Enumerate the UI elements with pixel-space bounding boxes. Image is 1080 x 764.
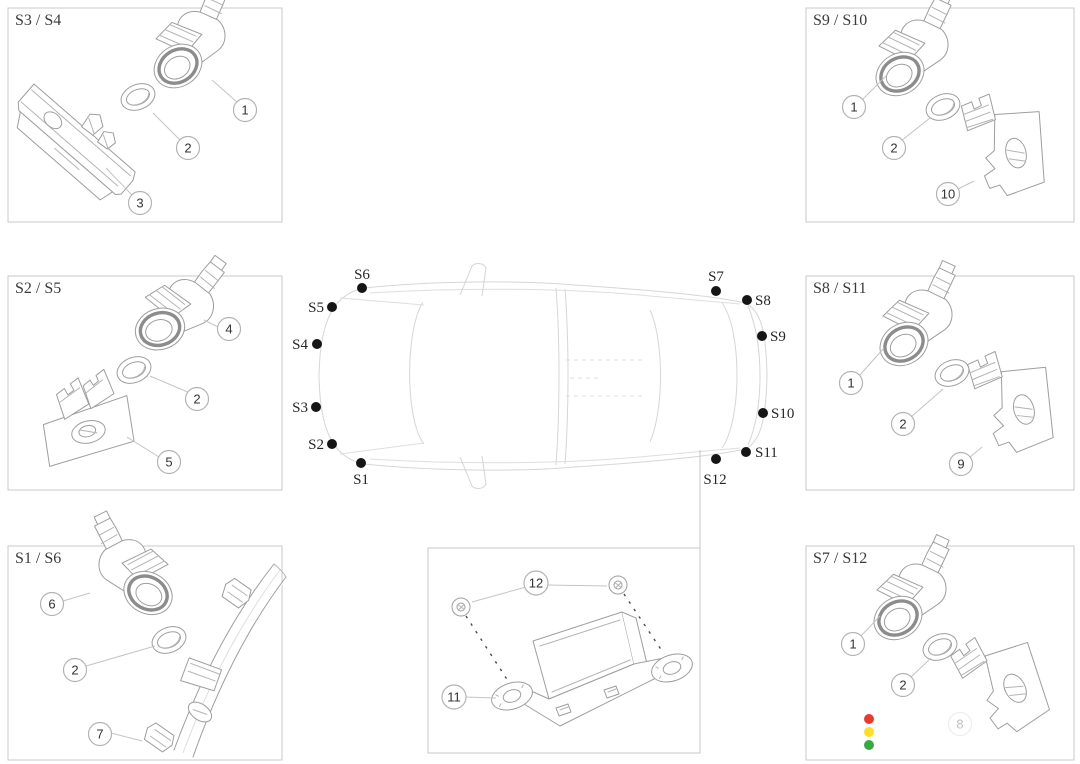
panel-label: S2 / S5 (15, 280, 61, 297)
car-trunk-lines (722, 303, 760, 448)
panel-s3-s4: S3 / S4 1 2 3 (5, 0, 282, 222)
panel-label: S7 / S12 (813, 550, 867, 567)
svg-text:2: 2 (899, 417, 906, 432)
callout-2[interactable]: 2 (892, 413, 915, 436)
sensor-marker-s1[interactable] (356, 458, 366, 468)
callout-11[interactable]: 11 (442, 685, 466, 709)
label-s6: S6 (354, 267, 370, 283)
label-s2: S2 (308, 437, 324, 453)
callout-10[interactable]: 10 (937, 183, 960, 206)
svg-text:11: 11 (447, 690, 461, 705)
car-sunroof-dashes (566, 360, 645, 396)
label-s9: S9 (770, 329, 786, 345)
callout-1[interactable]: 1 (840, 372, 863, 395)
sensor-marker-s12[interactable] (711, 454, 721, 464)
label-s11: S11 (755, 445, 778, 461)
svg-text:4: 4 (225, 322, 232, 337)
label-s7: S7 (708, 269, 724, 285)
sensor-marker-s6[interactable] (357, 283, 367, 293)
sensor-markers (311, 283, 768, 468)
svg-text:12: 12 (529, 576, 543, 591)
callout-3[interactable]: 3 (129, 192, 152, 215)
panel-label: S8 / S11 (813, 280, 867, 297)
svg-text:8: 8 (956, 717, 963, 732)
label-s1: S1 (353, 472, 369, 488)
svg-text:10: 10 (941, 187, 955, 202)
panel-s8-s11: S8 / S11 1 2 9 (806, 259, 1074, 490)
svg-text:2: 2 (899, 678, 906, 693)
svg-text:2: 2 (71, 663, 78, 678)
callout-2[interactable]: 2 (186, 388, 209, 411)
panel-s2-s5: S2 / S5 4 2 5 (8, 247, 282, 490)
svg-text:9: 9 (957, 457, 964, 472)
diagram-canvas: S3 / S4 1 2 3 S2 / S5 (0, 0, 1080, 764)
pdc-sensor-parts-diagram: S3 / S4 1 2 3 S2 / S5 (0, 0, 1080, 764)
svg-text:1: 1 (847, 376, 854, 391)
label-s12: S12 (703, 472, 726, 488)
screw-drawing-left (452, 598, 470, 616)
callout-1[interactable]: 1 (234, 99, 257, 122)
panel-label: S3 / S4 (15, 12, 61, 29)
label-s3: S3 (292, 400, 308, 416)
car-body-outline (319, 282, 767, 470)
callout-1[interactable]: 1 (842, 633, 865, 656)
callout-9[interactable]: 9 (950, 453, 973, 476)
svg-text:1: 1 (241, 103, 248, 118)
car-rear-window (650, 310, 661, 442)
status-dot-green (864, 740, 874, 750)
callout-2[interactable]: 2 (64, 659, 87, 682)
label-s8: S8 (755, 293, 771, 309)
car-mirrors (460, 264, 486, 489)
label-s4: S4 (292, 337, 308, 353)
svg-text:2: 2 (890, 141, 897, 156)
sensor-marker-s3[interactable] (311, 402, 321, 412)
panel-s9-s10: S9 / S10 1 2 10 (806, 0, 1074, 222)
sensor-marker-s4[interactable] (312, 339, 322, 349)
sensor-marker-s5[interactable] (327, 302, 337, 312)
svg-text:2: 2 (184, 141, 191, 156)
panel-label: S9 / S10 (813, 12, 867, 29)
status-lights (864, 714, 874, 750)
label-s5: S5 (308, 300, 324, 316)
status-dot-yellow (864, 727, 874, 737)
callout-7[interactable]: 7 (89, 723, 112, 746)
sensor-marker-s11[interactable] (741, 447, 751, 457)
status-dot-red (864, 714, 874, 724)
sensor-marker-s8[interactable] (742, 295, 752, 305)
svg-text:3: 3 (136, 196, 143, 211)
sensor-marker-s9[interactable] (757, 331, 767, 341)
panel-s1-s6: S1 / S6 (8, 510, 286, 760)
car-windshield (410, 302, 424, 444)
callout-4[interactable]: 4 (218, 318, 241, 341)
car-side-lines (340, 289, 740, 463)
callout-8[interactable]: 8 (949, 713, 972, 736)
callout-6[interactable]: 6 (41, 593, 64, 616)
callout-1[interactable]: 1 (843, 96, 866, 119)
sensor-marker-s10[interactable] (758, 408, 768, 418)
svg-text:1: 1 (850, 100, 857, 115)
svg-text:5: 5 (165, 455, 172, 470)
svg-text:2: 2 (193, 392, 200, 407)
callout-2[interactable]: 2 (883, 137, 906, 160)
panel-control-module: 11 12 (428, 548, 700, 753)
svg-text:1: 1 (849, 637, 856, 652)
screw-drawing-right (609, 576, 627, 594)
sensor-marker-s7[interactable] (711, 286, 721, 296)
callout-2[interactable]: 2 (177, 137, 200, 160)
panel-s7-s12: S7 / S12 1 2 8 (806, 533, 1074, 760)
car-roof-pillars (556, 288, 568, 465)
car-top-view: S1 S2 S3 S4 S5 S6 S7 S8 S9 S10 S11 S12 (292, 264, 794, 548)
sensor-marker-s2[interactable] (327, 439, 337, 449)
callout-12[interactable]: 12 (524, 571, 548, 595)
callout-2[interactable]: 2 (892, 674, 915, 697)
label-s10: S10 (771, 406, 794, 422)
callout-5[interactable]: 5 (158, 451, 181, 474)
svg-text:7: 7 (96, 727, 103, 742)
svg-text:6: 6 (48, 597, 55, 612)
panel-label: S1 / S6 (15, 550, 61, 567)
